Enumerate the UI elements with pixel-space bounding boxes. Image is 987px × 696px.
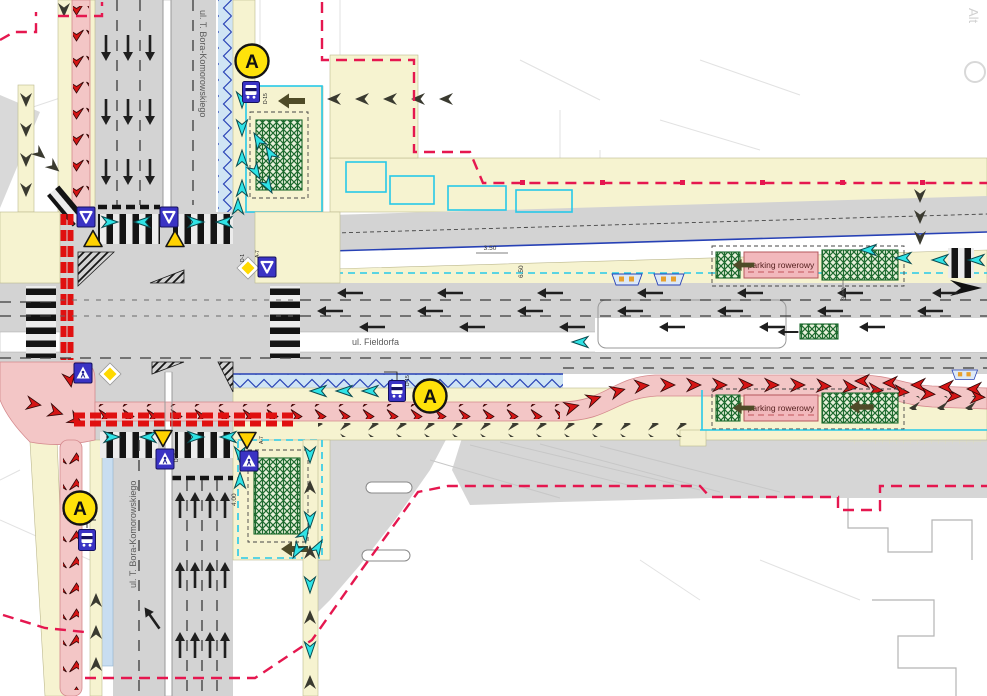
parking-aisle-island — [366, 482, 412, 493]
watermark-text: Alt — [966, 8, 981, 24]
dimension-400: 4.00 — [231, 493, 238, 506]
platform-north — [256, 120, 302, 190]
sign-code-a7: A-7 — [255, 250, 261, 258]
pedestrian-crossing-sign — [240, 451, 258, 471]
pedestrian-flow-east — [318, 423, 690, 437]
street-label-bora-north: ul. T. Bora-Komorowskiego — [198, 10, 208, 117]
sign-code-d1: D-1 — [240, 254, 246, 262]
sign-code-a7: A-7 — [259, 436, 265, 444]
sign-code-d15: D-15 — [263, 93, 269, 104]
street-label-fieldorfa: ul. Fieldorfa — [352, 337, 399, 347]
crosswalk-far-east — [948, 248, 974, 278]
yield-sign-a7 — [258, 257, 276, 277]
dimension-650: 6.50 — [518, 265, 525, 278]
median-island — [595, 318, 987, 352]
bus-stop-letter: A — [245, 52, 259, 73]
pedestrian-crossing-sign — [156, 449, 174, 469]
bus-stop-sign-icon — [389, 381, 406, 402]
traffic-plan-svg: Alt — [0, 0, 987, 696]
dimension-350: 3.50 — [484, 245, 497, 252]
bike-crossing-sign — [160, 207, 178, 227]
street-label-bora-south: ul. T. Bora-Komorowskiego — [128, 481, 138, 588]
bike-crossing-sign — [77, 207, 95, 227]
bus-stop-sign-icon — [79, 530, 96, 551]
crosswalk-north-2 — [173, 214, 233, 244]
parking-aisle-island — [362, 550, 410, 561]
sign-code-d6b: D-6b — [174, 451, 180, 462]
platform-south — [254, 458, 300, 534]
dimension-300: 3.00 — [841, 287, 848, 300]
bike-parking-label: parking rowerowy — [748, 403, 815, 413]
corner-sidewalk — [330, 55, 418, 158]
bus-stop-letter: A — [423, 387, 437, 408]
plan-canvas: Alt — [0, 0, 987, 696]
platform-median — [800, 324, 838, 339]
crosswalk-east — [270, 286, 300, 358]
crosswalk-west — [26, 286, 56, 358]
pedestrian-crossing-sign — [74, 363, 92, 383]
sign-code-d15: D-15 — [405, 375, 411, 386]
bus-stop-letter: A — [73, 499, 87, 520]
bike-parking-label: parking rowerowy — [748, 260, 815, 270]
bus-stop-sign-icon — [243, 82, 260, 103]
